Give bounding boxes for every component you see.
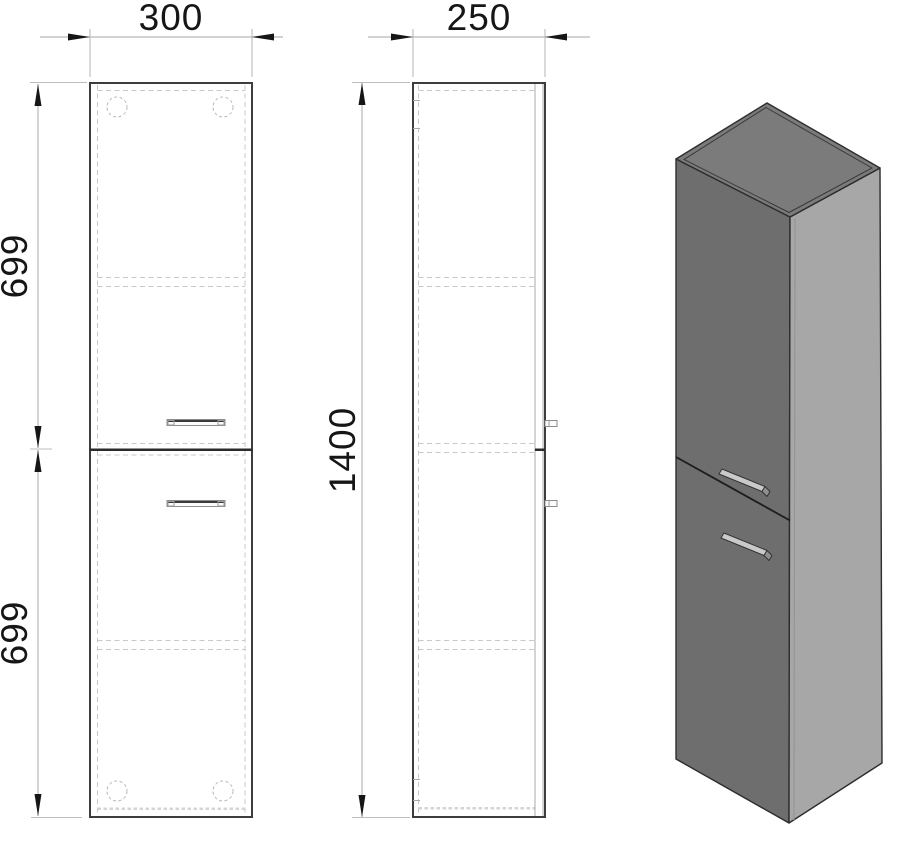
dimension-width-label: 300	[139, 0, 204, 38]
arrowhead-up-icon	[359, 83, 366, 105]
dimension-depth-label: 250	[447, 0, 512, 38]
side-outline	[413, 83, 545, 817]
dimension-width: 300	[40, 0, 283, 77]
technical-drawing-page: 300 250 1400 699 699	[0, 0, 900, 846]
iso-front-face	[676, 159, 790, 823]
dimension-height-upper: 699	[0, 83, 87, 450]
arrowhead-down-icon	[35, 426, 42, 448]
dimension-depth: 250	[368, 0, 590, 77]
arrowhead-right-icon	[68, 34, 90, 41]
door-handle-front-upper	[167, 420, 225, 426]
iso-side-face	[789, 168, 882, 823]
arrowhead-down-icon	[359, 795, 366, 817]
dimension-height-total: 1400	[322, 83, 410, 818]
door-handle-front-lower	[167, 501, 225, 507]
dimension-upper-height-label: 699	[0, 234, 35, 299]
arrowhead-down-icon	[35, 794, 42, 816]
side-view	[413, 83, 557, 817]
door-handle-side-lower	[545, 501, 557, 507]
front-view	[90, 83, 252, 817]
arrowhead-right-icon	[391, 34, 413, 41]
dimension-height-lower: 699	[0, 450, 82, 818]
dimension-height-label: 1400	[322, 407, 363, 493]
arrowhead-left-icon	[252, 34, 274, 41]
arrowhead-up-icon	[35, 84, 42, 106]
arrowhead-left-icon	[545, 34, 567, 41]
arrowhead-up-icon	[35, 450, 42, 472]
dimension-lower-height-label: 699	[0, 601, 35, 666]
technical-drawing-canvas: 300 250 1400 699 699	[0, 0, 900, 846]
isometric-view	[676, 103, 882, 823]
door-handle-side-upper	[545, 421, 557, 427]
